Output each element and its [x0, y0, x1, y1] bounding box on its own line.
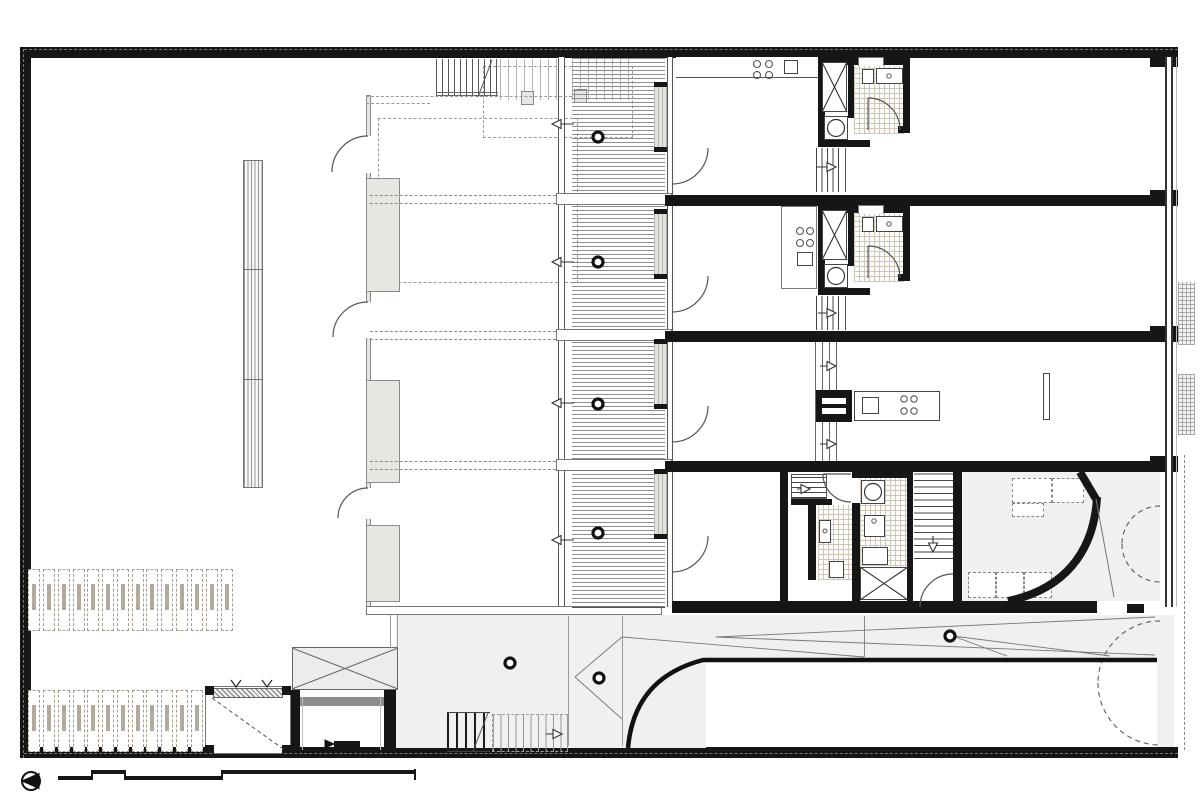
louvre-joint-a [243, 269, 263, 270]
floor-plan-drawing [0, 0, 1200, 800]
car-bar [334, 741, 360, 747]
parking-slot-marker [121, 584, 125, 610]
pod2-xbox [822, 210, 847, 260]
parking-slot-marker [106, 705, 110, 731]
cab-5 [996, 572, 1024, 598]
parking-slot [28, 569, 40, 631]
unit-divider-2 [665, 331, 1178, 342]
parking-slot [221, 569, 233, 631]
unit4-shelf [862, 547, 888, 565]
bin-post-1 [205, 686, 214, 695]
pod2-stair [816, 296, 842, 330]
cab-6 [1024, 572, 1052, 598]
east-glazing [1165, 57, 1173, 607]
parking-slot-marker [32, 705, 36, 731]
deck-window-1-cap-a [654, 82, 667, 87]
parking-slot [176, 569, 188, 631]
paving-joint-c [864, 616, 865, 657]
divider-speck-3b [370, 469, 556, 470]
parking-slot [73, 690, 85, 752]
garden-stair-dashed [492, 714, 568, 752]
parking-slot-marker [180, 705, 184, 731]
parking-slot [132, 690, 144, 752]
unit4-wall-stair-r [953, 472, 962, 603]
pod1-wall-right [903, 57, 910, 133]
divider-speck-2b [370, 339, 556, 340]
facade-box-1 [1178, 282, 1195, 345]
deck-bottom-edge [572, 607, 665, 608]
west-door-gap-2 [365, 302, 372, 338]
unit4-bath-a-sink [819, 520, 831, 543]
parking-slot-marker [195, 584, 199, 610]
parking-slot-marker [210, 584, 214, 610]
divider-end-top [1150, 57, 1178, 67]
louvre-joint-b [243, 379, 263, 380]
parking-slot-marker [91, 705, 95, 731]
scalebar-joint-3 [221, 770, 223, 780]
kitchen1-sink [784, 60, 798, 74]
pod1-stair [816, 148, 842, 192]
site-boundary-east [1184, 455, 1185, 750]
bin-post-2 [282, 686, 291, 695]
parking-slot [58, 690, 70, 752]
unit4-bath-a-toilet [829, 561, 844, 578]
bin-grille [213, 688, 283, 698]
parking-slot-marker [77, 705, 81, 731]
cab-1 [1012, 478, 1052, 503]
pod1-stair-edge [845, 148, 846, 192]
parking-slot [161, 690, 173, 752]
deck-window-3 [654, 343, 667, 405]
divider-speck-1a [370, 195, 556, 196]
yard-louvre-screen [243, 160, 263, 488]
vestibule-track-a [302, 697, 303, 750]
parking-slot [102, 690, 114, 752]
deck-window-2 [654, 213, 667, 275]
vestibule-track-b [380, 697, 381, 750]
floor-plan-canvas [0, 0, 1200, 800]
kitchen2-sink [797, 252, 813, 266]
unit-divider-1 [665, 195, 1178, 206]
unit-divider-3 [665, 461, 1178, 472]
parking-slot-marker [136, 705, 140, 731]
unit3-flue-slat-b [822, 408, 846, 414]
divider-end-2 [1150, 326, 1178, 342]
divider-end-1 [1150, 190, 1178, 206]
west-door-gap-3 [365, 488, 372, 519]
pod2-wall-return [898, 274, 910, 281]
cab-2 [1052, 478, 1084, 503]
scalebar-joint-1 [91, 770, 93, 780]
divider-end-3 [1150, 456, 1178, 472]
west-door-gap-1 [365, 136, 372, 173]
parking-slot [117, 690, 129, 752]
unit4-wall-stair-l [907, 472, 913, 603]
wall-speck-top-a [366, 96, 572, 97]
paving-right-strip [1157, 615, 1174, 747]
boundary-dash-bottom [24, 753, 1178, 754]
parking-slot-marker [62, 705, 66, 731]
pod2-toilet [862, 217, 874, 232]
parking-slot-marker [150, 705, 154, 731]
parking-slot [28, 690, 40, 752]
scalebar-end [414, 769, 416, 780]
deck-window-1-cap-b [654, 147, 667, 152]
parking-slot-marker [150, 584, 154, 610]
unit4-washer [861, 480, 885, 504]
parking-slot-marker [77, 584, 81, 610]
unit3-column [1043, 373, 1050, 420]
unit3-flue-slat-a [822, 398, 846, 404]
parking-slot-marker [165, 584, 169, 610]
pod2-wall-right [903, 205, 910, 281]
site-wall-left [20, 47, 31, 758]
unit3-flue [816, 390, 852, 422]
unit4-vanity [864, 515, 885, 537]
parking-slot-marker [195, 705, 199, 731]
deck-window-4 [654, 473, 667, 535]
gutter-a [390, 615, 391, 648]
garden-stair-solid [447, 712, 490, 752]
pod1-vanity [876, 68, 903, 84]
vestibule-track [300, 697, 384, 706]
parking-slot [146, 690, 158, 752]
paving-joint-b [622, 616, 623, 746]
wall-speck-top-b [366, 103, 430, 104]
scalebar-seg-2 [92, 770, 125, 774]
parking-slot-marker [121, 705, 125, 731]
scalebar-seg-4 [222, 770, 415, 774]
parking-slot [43, 690, 55, 752]
bottom-wall-east [672, 601, 1097, 613]
glazing-outer [1176, 57, 1177, 607]
scalebar-seg-3 [125, 776, 222, 780]
parking-slot-marker [225, 584, 229, 610]
facade-box-2 [1178, 374, 1195, 435]
paving-joint-a [568, 616, 569, 746]
unit4-stair-b [914, 473, 953, 559]
boundary-dash-left [23, 49, 24, 758]
divider-speck-3a [370, 461, 556, 462]
parking-slot [176, 690, 188, 752]
pod1-wall-return [898, 126, 910, 133]
unit4-stair-a [791, 474, 827, 499]
unit4-wall-west [780, 472, 788, 613]
pod1-wall-bottom [818, 140, 870, 147]
parking-slot [117, 569, 129, 631]
parking-slot-marker [180, 584, 184, 610]
gutter-b [397, 615, 398, 648]
wardrobe-3 [366, 525, 400, 602]
parking-slot [146, 569, 158, 631]
parking-slot [87, 690, 99, 752]
stair-top-solid [436, 59, 498, 95]
pod2-washer [824, 264, 848, 288]
divider-speck-1b [370, 203, 556, 204]
pod2-vanity [876, 216, 903, 232]
paving-band [620, 615, 1157, 659]
entry-canopy [292, 647, 398, 690]
parking-slot [191, 690, 203, 752]
roof-outline-b [378, 118, 578, 283]
bollard [1127, 604, 1144, 613]
vestibule-wall-right [384, 690, 396, 752]
parking-slot [87, 569, 99, 631]
parking-slot-marker [62, 584, 66, 610]
parking-slot [58, 569, 70, 631]
scalebar-seg-1 [58, 776, 92, 780]
divider-speck-2a [370, 331, 556, 332]
parking-slot [102, 569, 114, 631]
unit4-wall-spine-b [852, 503, 860, 603]
parking-slot-marker [136, 584, 140, 610]
parking-slot [43, 569, 55, 631]
unit3-island-sink [862, 397, 879, 414]
cab-4 [968, 572, 996, 598]
parking-slot-marker [91, 584, 95, 610]
unit4-wall-spine-a [808, 505, 816, 580]
parking-slot-marker [165, 705, 169, 731]
pod1-xbox [822, 62, 847, 112]
roof-post-a [521, 91, 534, 105]
parking-slot-marker [47, 705, 51, 731]
kitchen2-counter [781, 206, 817, 289]
parking-slot-marker [47, 584, 51, 610]
pod2-stair-edge [845, 296, 846, 330]
parking-slot-marker [32, 584, 36, 610]
pod1-washer [824, 116, 848, 140]
deck-window-1 [654, 86, 667, 148]
parking-slot [161, 569, 173, 631]
parking-slot-marker [106, 584, 110, 610]
parking-slot [191, 569, 203, 631]
parking-slot [132, 569, 144, 631]
scalebar-joint-2 [124, 770, 126, 780]
deck-window-2-cap-a [654, 209, 667, 214]
deck-window-4-cap-b [654, 534, 667, 539]
deck-window-3-cap-b [654, 404, 667, 409]
stair-top-rail-a [436, 92, 498, 93]
parking-slot [206, 569, 218, 631]
boundary-dash-top [24, 49, 1178, 50]
parking-slot [73, 569, 85, 631]
deck-band-1 [556, 193, 672, 205]
pod2-wall-bottom [818, 288, 870, 295]
wardrobe-2 [366, 380, 400, 483]
unit4-shower [860, 567, 908, 600]
pod1-toilet [862, 69, 874, 84]
deck-window-2-cap-b [654, 274, 667, 279]
cab-3 [1012, 503, 1044, 517]
